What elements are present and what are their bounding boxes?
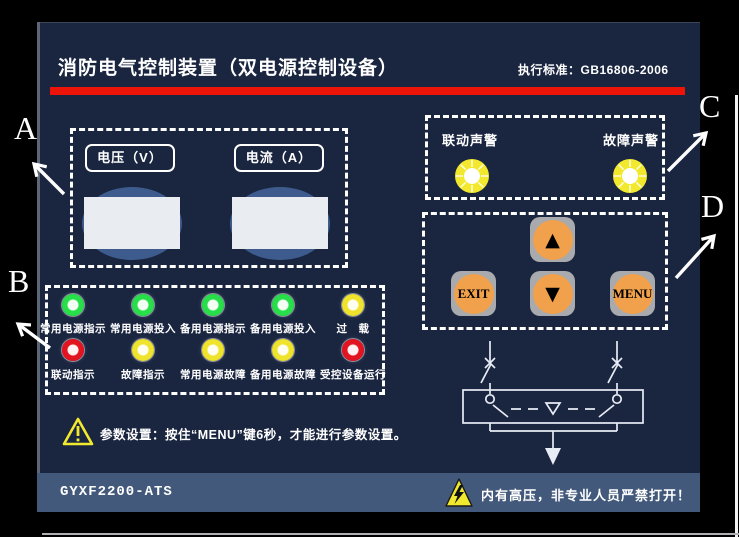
current-display [230,187,330,260]
linkage-buzzer-icon [454,158,490,194]
voltage-display [82,187,182,260]
photo-edge-line-bottom [42,533,739,535]
fault-alarm-label: 故障声警 [603,130,659,149]
fault-indicator-led [132,339,154,361]
backup-power-fault-led [272,339,294,361]
annotation-b: B [8,265,29,297]
current-label: 电流（A） [234,144,324,172]
voltage-label: 电压（V） [85,144,175,172]
standard-label: 执行标准：GB16806-2006 [518,61,669,78]
alarm-section: 联动声警 故障声警 [425,115,665,200]
overload-led [342,294,364,316]
down-button[interactable]: ▼ [530,271,575,316]
photo-edge-line-right [735,95,738,537]
backup-power-indicator-led [202,294,224,316]
main-power-fault-led [202,339,224,361]
annotation-d: D [701,190,724,222]
exit-button-label: EXIT [454,274,494,314]
down-arrow-icon: ▼ [533,274,573,314]
up-arrow-icon: ▲ [533,220,573,260]
up-button[interactable]: ▲ [530,217,575,262]
backup-power-engaged-led [272,294,294,316]
main-power-engaged-led [132,294,154,316]
menu-button[interactable]: MENU [610,271,655,316]
footer-bar: GYXF2200-ATS 内有高压，非专业人员严禁打开！ [37,473,700,512]
red-accent-bar [50,87,685,95]
menu-button-label: MENU [613,274,653,314]
indicator-section: 常用电源指示 常用电源投入 备用电源指示 备用电源投入 过 载 联动指示 故障指… [45,285,385,395]
linkage-indicator-led [62,339,84,361]
controlled-device-running-led [342,339,364,361]
controlled-device-running-label: 受控设备运行 [307,367,399,382]
exit-button[interactable]: EXIT [451,271,496,316]
control-panel-photo: 消防电气控制装置（双电源控制设备） 执行标准：GB16806-2006 电压（V… [0,0,739,537]
model-label: GYXF2200-ATS [60,484,173,500]
main-power-indicator-led [62,294,84,316]
fault-buzzer-icon [612,158,648,194]
high-voltage-warning: 内有高压，非专业人员严禁打开！ [481,485,691,504]
overload-label: 过 载 [307,321,399,336]
panel-title: 消防电气控制装置（双电源控制设备） [58,53,398,80]
linkage-alarm-label: 联动声警 [442,130,498,149]
keypad-section: ▲ EXIT ▼ MENU [422,212,668,330]
high-voltage-icon [444,477,474,509]
param-note: 参数设置：按住“MENU”键6秒，才能进行参数设置。 [100,424,407,443]
annotation-c: C [699,90,720,122]
meter-section: 电压（V） 电流（A） [70,128,348,268]
annotation-a: A [14,112,37,144]
